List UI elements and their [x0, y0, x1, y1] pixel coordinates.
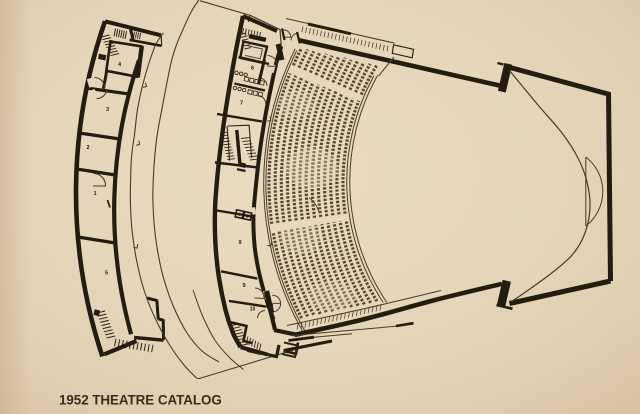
svg-text:1: 1: [93, 191, 96, 197]
svg-text:9: 9: [242, 283, 245, 289]
svg-text:1952 THEATRE CATALOG: 1952 THEATRE CATALOG: [59, 393, 222, 408]
svg-text:10: 10: [250, 307, 256, 313]
svg-text:7: 7: [240, 101, 243, 107]
svg-text:3: 3: [106, 107, 109, 113]
svg-text:2: 2: [86, 145, 89, 151]
svg-text:6: 6: [251, 66, 254, 72]
svg-text:9: 9: [238, 240, 241, 246]
svg-text:5: 5: [105, 271, 108, 277]
